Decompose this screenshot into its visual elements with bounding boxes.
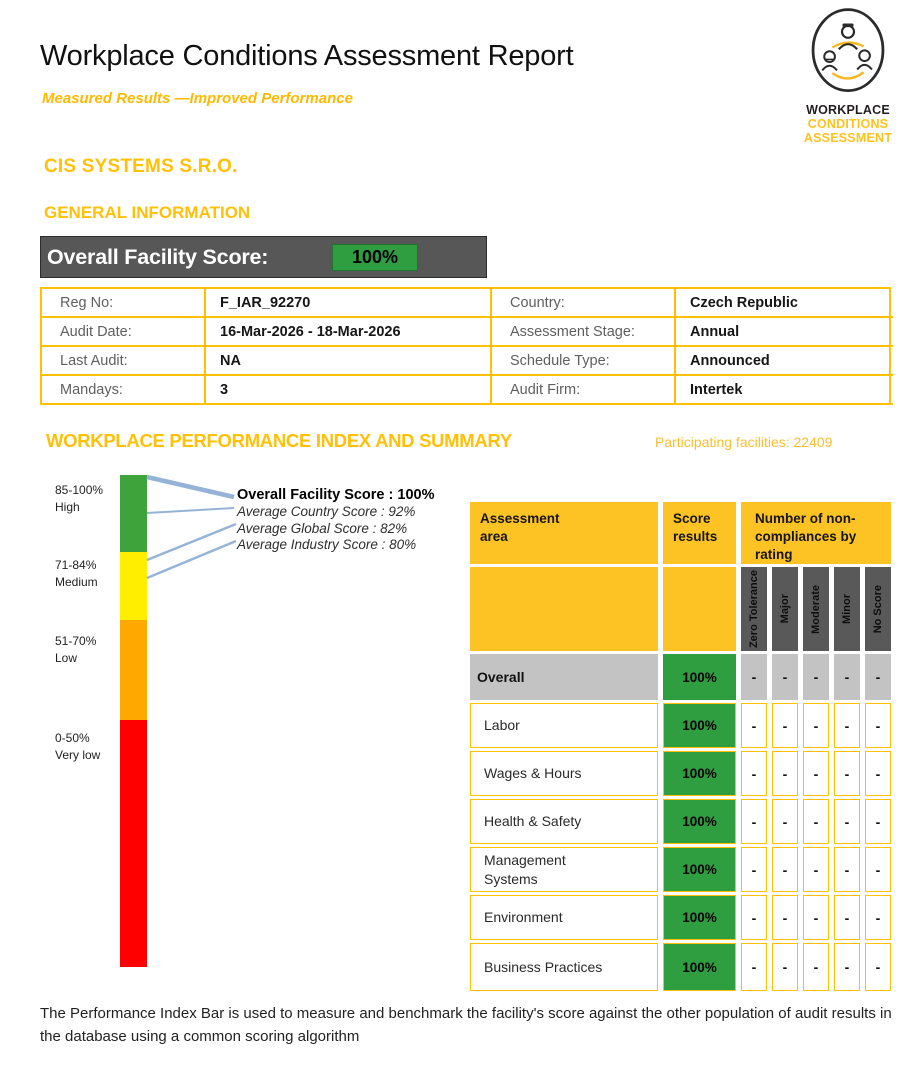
performance-index-heading: WORKPLACE PERFORMANCE INDEX AND SUMMARY bbox=[46, 430, 512, 452]
rating-value: - bbox=[772, 654, 798, 700]
info-label: Mandays: bbox=[42, 376, 204, 405]
overall-facility-score-bar: Overall Facility Score: 100% bbox=[40, 236, 487, 278]
band-label-very-low: 0-50%Very low bbox=[55, 730, 125, 764]
rating-value: - bbox=[803, 847, 829, 892]
band-label-medium: 71-84%Medium bbox=[55, 557, 125, 591]
rating-value: - bbox=[865, 847, 891, 892]
rating-value: - bbox=[865, 654, 891, 700]
rating-value: - bbox=[803, 799, 829, 844]
table-row-score: 100% bbox=[663, 703, 736, 748]
rating-value: - bbox=[803, 751, 829, 796]
info-label: Reg No: bbox=[42, 289, 204, 318]
spacer-cell bbox=[663, 567, 736, 651]
rating-value: - bbox=[834, 703, 860, 748]
table-row-area: Labor bbox=[470, 703, 658, 748]
index-bar-segment-high bbox=[120, 475, 147, 552]
info-label: Last Audit: bbox=[42, 347, 204, 376]
rating-value: - bbox=[803, 943, 829, 991]
info-value: Annual bbox=[674, 318, 893, 347]
general-information-heading: GENERAL INFORMATION bbox=[44, 203, 250, 223]
index-bar-segment-very-low bbox=[120, 720, 147, 967]
info-value: Intertek bbox=[674, 376, 893, 405]
rating-value: - bbox=[741, 654, 767, 700]
logo-wordmark: WORKPLACE CONDITIONS ASSESSMENT bbox=[793, 103, 903, 145]
info-label: Assessment Stage: bbox=[490, 318, 674, 347]
rating-value: - bbox=[772, 799, 798, 844]
logo-line-conditions: CONDITIONS bbox=[793, 117, 903, 131]
average-industry-score: Average Industry Score : 80% bbox=[237, 537, 434, 554]
column-header-noncompliance: Number of non- compliances by rating bbox=[741, 502, 891, 564]
table-row-score: 100% bbox=[663, 847, 736, 892]
info-value: NA bbox=[204, 347, 490, 376]
rating-column-major: Major bbox=[772, 567, 798, 651]
table-row-area: Wages & Hours bbox=[470, 751, 658, 796]
rating-value: - bbox=[803, 654, 829, 700]
rating-value: - bbox=[865, 703, 891, 748]
info-value: Czech Republic bbox=[674, 289, 893, 318]
rating-value: - bbox=[803, 703, 829, 748]
info-value: 16-Mar-2026 - 18-Mar-2026 bbox=[204, 318, 490, 347]
score-callouts: Overall Facility Score : 100% Average Co… bbox=[237, 487, 434, 554]
rating-value: - bbox=[741, 943, 767, 991]
rating-value: - bbox=[834, 751, 860, 796]
rating-value: - bbox=[741, 847, 767, 892]
table-row-score: 100% bbox=[663, 799, 736, 844]
participating-facilities: Participating facilities: 22409 bbox=[655, 434, 832, 450]
rating-value: - bbox=[741, 751, 767, 796]
band-label-low: 51-70%Low bbox=[55, 633, 125, 667]
column-header-area: Assessment area bbox=[470, 502, 658, 564]
rating-column-moderate: Moderate bbox=[803, 567, 829, 651]
rating-value: - bbox=[741, 703, 767, 748]
rating-value: - bbox=[865, 799, 891, 844]
table-row-score: 100% bbox=[663, 654, 736, 700]
performance-index-section: 85-100%High 71-84%Medium 51-70%Low 0-50%… bbox=[40, 470, 891, 1002]
column-header-score: Score results bbox=[663, 502, 736, 564]
rating-value: - bbox=[834, 847, 860, 892]
report-tagline: Measured Results —Improved Performance bbox=[42, 90, 353, 107]
table-row-area: Health & Safety bbox=[470, 799, 658, 844]
band-label-high: 85-100%High bbox=[55, 482, 125, 516]
table-row-area: Business Practices bbox=[470, 943, 658, 991]
rating-value: - bbox=[803, 895, 829, 940]
note-line-2: the database using a common scoring algo… bbox=[40, 1026, 900, 1049]
rating-value: - bbox=[834, 654, 860, 700]
summary-table: Assessment area Score results Number of … bbox=[470, 502, 891, 991]
table-row-area: Environment bbox=[470, 895, 658, 940]
note-line-1: The Performance Index Bar is used to mea… bbox=[40, 1003, 900, 1026]
index-bar-segment-medium bbox=[120, 552, 147, 620]
index-bar-segment-low bbox=[120, 620, 147, 720]
performance-index-note: The Performance Index Bar is used to mea… bbox=[40, 1003, 900, 1048]
rating-value: - bbox=[834, 943, 860, 991]
average-country-score: Average Country Score : 92% bbox=[237, 504, 434, 521]
rating-value: - bbox=[772, 703, 798, 748]
table-row-score: 100% bbox=[663, 751, 736, 796]
performance-index-bar bbox=[120, 475, 147, 967]
wca-logo: WORKPLACE CONDITIONS ASSESSMENT bbox=[793, 6, 903, 145]
rating-value: - bbox=[772, 895, 798, 940]
report-page: Workplace Conditions Assessment Report M… bbox=[0, 0, 910, 1080]
info-value: F_IAR_92270 bbox=[204, 289, 490, 318]
company-name: CIS SYSTEMS S.R.O. bbox=[44, 156, 238, 178]
rating-value: - bbox=[865, 943, 891, 991]
general-information-table: Reg No: F_IAR_92270 Country: Czech Repub… bbox=[40, 287, 891, 405]
rating-value: - bbox=[772, 943, 798, 991]
info-label: Audit Date: bbox=[42, 318, 204, 347]
overall-facility-score-label: Overall Facility Score: bbox=[41, 245, 268, 270]
info-value: 3 bbox=[204, 376, 490, 405]
rating-value: - bbox=[834, 895, 860, 940]
rating-column-zero-tolerance: Zero Tolerance bbox=[741, 567, 767, 651]
rating-column-no-score: No Score bbox=[865, 567, 891, 651]
rating-column-minor: Minor bbox=[834, 567, 860, 651]
logo-line-assessment: ASSESSMENT bbox=[793, 131, 903, 145]
people-circle-icon bbox=[796, 6, 900, 98]
info-label: Schedule Type: bbox=[490, 347, 674, 376]
table-row-score: 100% bbox=[663, 943, 736, 991]
table-row-area: Management Systems bbox=[470, 847, 658, 892]
rating-value: - bbox=[834, 799, 860, 844]
info-label: Country: bbox=[490, 289, 674, 318]
info-value: Announced bbox=[674, 347, 893, 376]
info-label: Audit Firm: bbox=[490, 376, 674, 405]
rating-value: - bbox=[741, 799, 767, 844]
rating-value: - bbox=[865, 895, 891, 940]
rating-value: - bbox=[772, 847, 798, 892]
average-global-score: Average Global Score : 82% bbox=[237, 521, 434, 538]
overall-facility-score-callout: Overall Facility Score : 100% bbox=[237, 487, 434, 504]
table-row-area: Overall bbox=[470, 654, 658, 700]
logo-line-workplace: WORKPLACE bbox=[793, 103, 903, 117]
page-title: Workplace Conditions Assessment Report bbox=[40, 40, 573, 73]
rating-value: - bbox=[865, 751, 891, 796]
rating-value: - bbox=[741, 895, 767, 940]
table-row-score: 100% bbox=[663, 895, 736, 940]
overall-facility-score-value: 100% bbox=[332, 244, 418, 271]
rating-value: - bbox=[772, 751, 798, 796]
spacer-cell bbox=[470, 567, 658, 651]
